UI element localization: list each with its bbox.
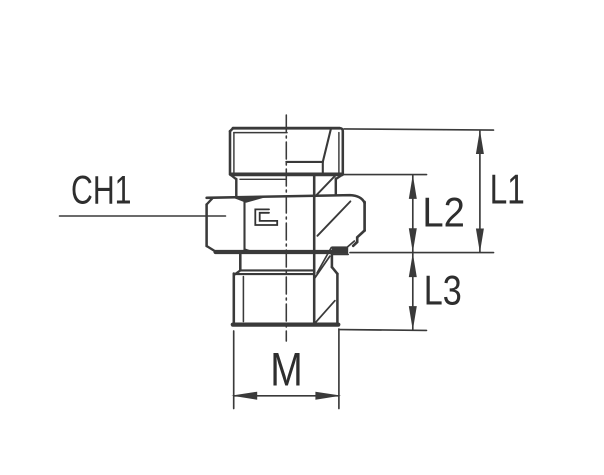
- svg-text:CH1: CH1: [71, 169, 132, 213]
- svg-text:L2: L2: [422, 189, 465, 236]
- svg-text:L3: L3: [424, 267, 462, 314]
- svg-text:M: M: [270, 344, 303, 397]
- svg-text:L1: L1: [490, 166, 525, 213]
